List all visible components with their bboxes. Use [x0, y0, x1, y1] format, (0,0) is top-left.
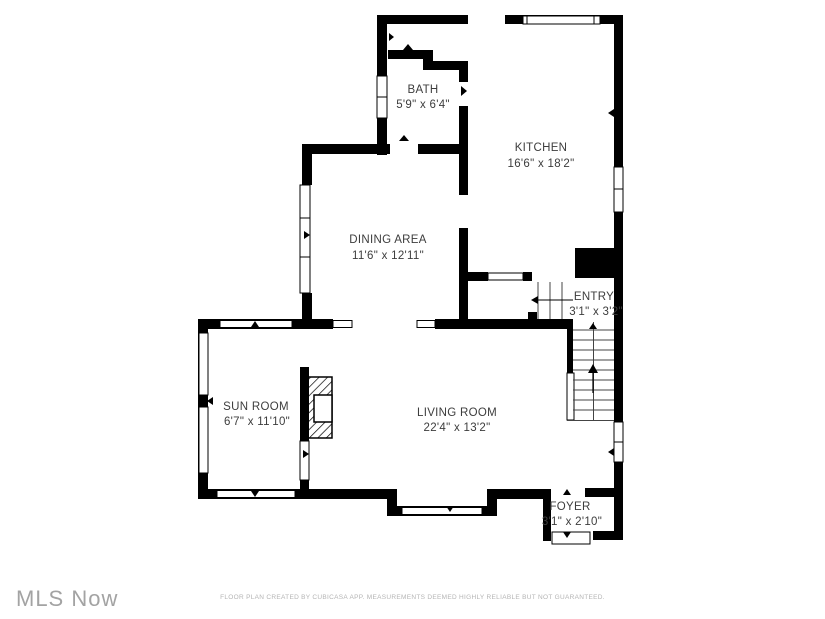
floor-plan-page: BATH 5'9" x 6'4" KITCHEN 16'6" x 18'2" D… [0, 0, 825, 619]
room-name-living: LIVING ROOM [417, 407, 497, 419]
fireplace [308, 377, 332, 438]
room-label-bath: BATH 5'9" x 6'4" [396, 84, 450, 111]
room-dims-dining: 11'6" x 12'11" [352, 250, 424, 262]
floor-plan: BATH 5'9" x 6'4" KITCHEN 16'6" x 18'2" D… [0, 0, 825, 619]
room-label-sunroom: SUN ROOM 6'7" x 11'10" [223, 401, 290, 428]
room-name-kitchen: KITCHEN [515, 142, 568, 154]
room-label-living: LIVING ROOM 22'4" x 13'2" [417, 407, 497, 434]
room-name-bath: BATH [407, 84, 438, 96]
room-dims-foyer: 3'1" x 2'10" [542, 516, 602, 528]
room-name-entry: ENTRY [574, 291, 614, 303]
room-label-kitchen: KITCHEN 16'6" x 18'2" [508, 142, 575, 170]
room-label-dining: DINING AREA 11'6" x 12'11" [349, 234, 426, 262]
room-dims-sunroom: 6'7" x 11'10" [224, 416, 290, 428]
room-dims-kitchen: 16'6" x 18'2" [508, 158, 575, 170]
room-name-sunroom: SUN ROOM [223, 401, 289, 413]
room-name-foyer: FOYER [549, 501, 590, 513]
room-dims-living: 22'4" x 13'2" [424, 422, 491, 434]
room-name-dining: DINING AREA [349, 234, 426, 246]
room-dims-entry: 3'1" x 3'2" [569, 306, 623, 318]
room-dims-bath: 5'9" x 6'4" [396, 99, 450, 111]
disclaimer-text: FLOOR PLAN CREATED BY CUBICASA APP. MEAS… [0, 594, 825, 601]
